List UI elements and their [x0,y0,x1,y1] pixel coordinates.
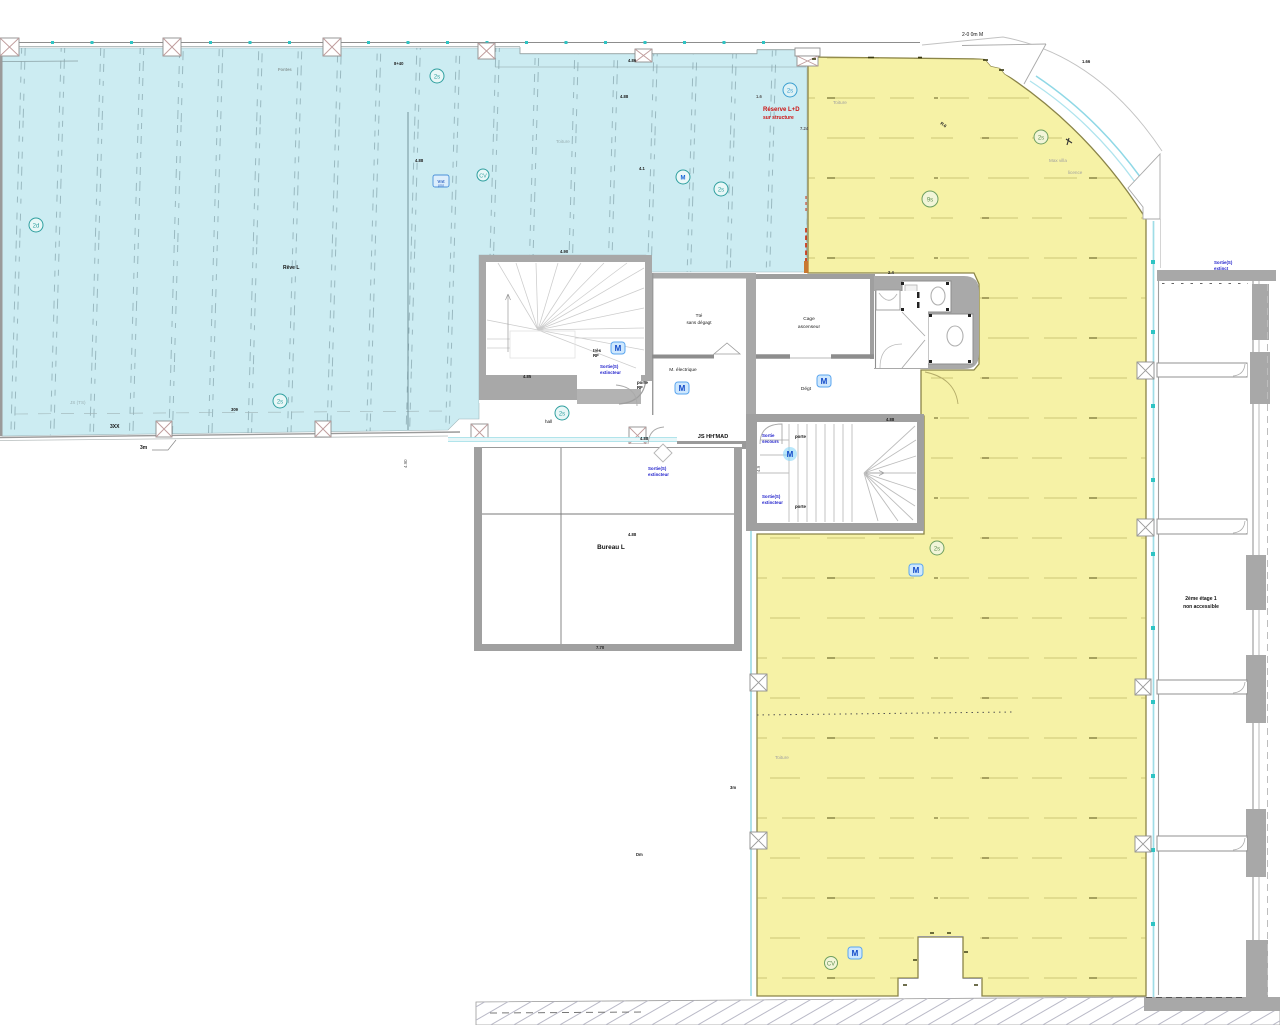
svg-text:JS (TS): JS (TS) [70,400,86,405]
svg-text:309: 309 [231,407,239,412]
svg-text:M. électrique: M. électrique [669,367,697,373]
svg-text:M: M [679,384,686,393]
svg-text:4.86: 4.86 [628,58,637,63]
svg-text:2.4: 2.4 [888,270,894,275]
svg-text:2s: 2s [934,547,940,553]
svg-text:Cage: Cage [803,316,815,322]
svg-text:JS HH'MAD: JS HH'MAD [698,434,729,440]
svg-text:Tté: Tté [696,313,703,318]
svg-text:hall: hall [545,419,552,424]
svg-text:Dégt: Dégt [801,386,812,392]
svg-text:Sortie(S): Sortie(S) [600,364,619,369]
svg-text:4.88: 4.88 [640,436,649,441]
svg-text:4.90: 4.90 [560,249,569,254]
svg-text:extinct: extinct [1214,266,1229,271]
svg-text:4.88: 4.88 [628,532,637,537]
svg-text:Sortie(S): Sortie(S) [648,466,667,471]
svg-text:Toiture: Toiture [775,755,789,760]
svg-text:CV: CV [479,174,487,180]
svg-text:ascenseur: ascenseur [798,324,821,330]
svg-text:Bureau L: Bureau L [597,544,625,551]
svg-text:Sortie(S): Sortie(S) [1214,260,1233,265]
svg-text:2s: 2s [434,75,440,81]
svg-text:3m: 3m [730,785,736,790]
svg-text:extincteur: extincteur [600,370,621,375]
svg-text:M: M [821,377,828,386]
svg-text:4.90: 4.90 [403,459,408,468]
svg-text:CV: CV [827,962,835,968]
svg-text:Rêve L: Rêve L [283,265,299,271]
svg-text:4.88: 4.88 [886,417,895,422]
svg-text:9s: 9s [927,198,933,204]
svg-text:4.88: 4.88 [415,158,424,163]
svg-text:7.70: 7.70 [596,645,605,650]
svg-text:7.24: 7.24 [800,126,809,131]
svg-text:1.6: 1.6 [756,94,762,99]
svg-text:Réserve L+D: Réserve L+D [763,107,800,113]
svg-text:2s: 2s [277,400,283,406]
svg-text:licence: licence [1068,170,1083,175]
svg-text:1.66: 1.66 [1082,59,1091,64]
svg-text:porte: porte [795,434,807,439]
svg-text:2ème étage 1: 2ème étage 1 [1185,596,1217,602]
svg-text:extincteur: extincteur [648,472,669,477]
svg-text:Sortie(S): Sortie(S) [762,494,781,499]
svg-text:Max villa: Max villa [1049,158,1067,163]
svg-text:Sortie: Sortie [762,433,775,438]
svg-text:2-0 0m M: 2-0 0m M [962,32,983,38]
svg-text:M: M [852,949,859,958]
svg-text:RF: RF [637,385,643,390]
svg-text:Fontes: Fontes [278,67,292,72]
svg-text:2s: 2s [787,89,793,95]
svg-text:pmr: pmr [438,184,445,188]
svg-text:Toiture: Toiture [556,139,570,144]
svg-text:3XX: 3XX [110,424,120,430]
svg-text:RF: RF [593,353,599,358]
svg-text:sur structure: sur structure [763,115,794,121]
svg-text:extincteur: extincteur [762,500,783,505]
svg-text:2s: 2s [559,412,565,418]
svg-text:M: M [787,450,794,459]
svg-text:M: M [913,566,920,575]
svg-text:Toiture: Toiture [833,100,847,105]
svg-text:3m: 3m [140,445,148,451]
svg-text:M: M [615,344,622,353]
svg-text:2s: 2s [1038,136,1044,142]
svg-text:4.9: 4.9 [756,465,761,472]
svg-text:4.1: 4.1 [639,166,645,171]
svg-text:porte: porte [795,504,807,509]
svg-text:Dm: Dm [636,852,643,857]
svg-text:4.88: 4.88 [620,94,629,99]
svg-text:2d: 2d [33,224,40,230]
svg-text:sans dégagt: sans dégagt [686,320,712,325]
svg-text:secours: secours [762,439,779,444]
svg-text:M: M [681,176,686,182]
svg-text:4.85: 4.85 [523,374,532,379]
svg-text:non accessible: non accessible [1183,604,1219,610]
svg-text:8+40: 8+40 [394,61,404,66]
svg-text:2s: 2s [718,188,724,194]
